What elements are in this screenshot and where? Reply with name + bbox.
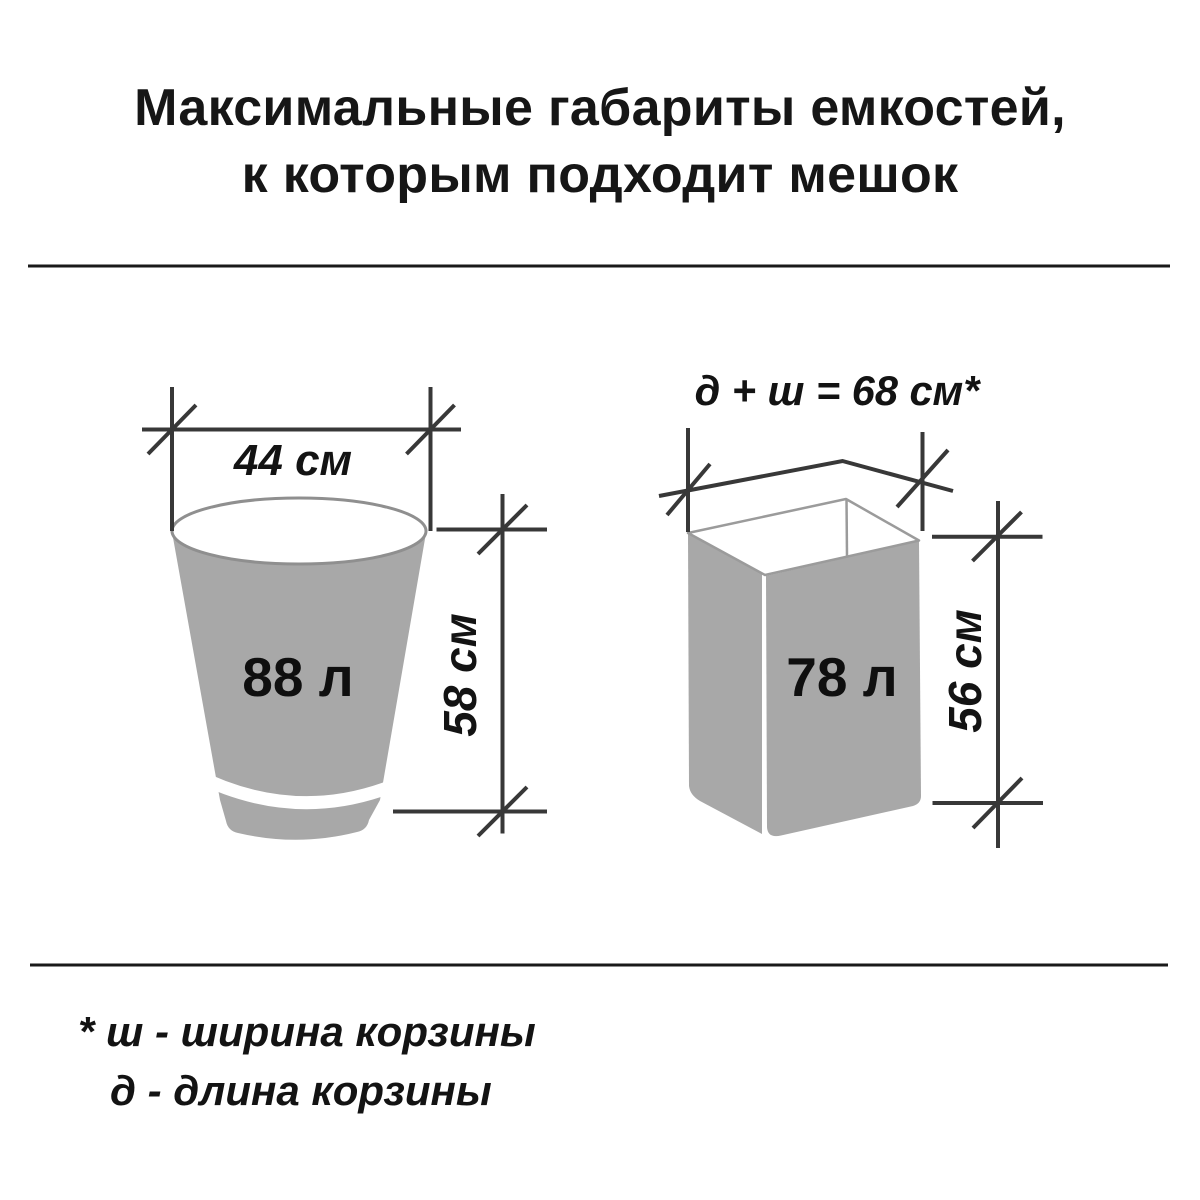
svg-text:56 см: 56 см [939,609,991,733]
svg-text:* ш - ширина корзины: * ш - ширина корзины [78,1008,536,1055]
svg-text:88 л: 88 л [242,646,353,708]
svg-text:к которым подходит мешок: к которым подходит мешок [242,146,959,204]
svg-text:д - длина корзины: д - длина корзины [110,1067,492,1114]
svg-text:д + ш = 68 см*: д + ш = 68 см* [695,367,982,414]
svg-text:44 см: 44 см [233,436,352,485]
svg-text:Максимальные габариты емкостей: Максимальные габариты емкостей, [134,79,1066,137]
svg-text:58 см: 58 см [434,613,486,737]
svg-text:78 л: 78 л [786,646,897,708]
